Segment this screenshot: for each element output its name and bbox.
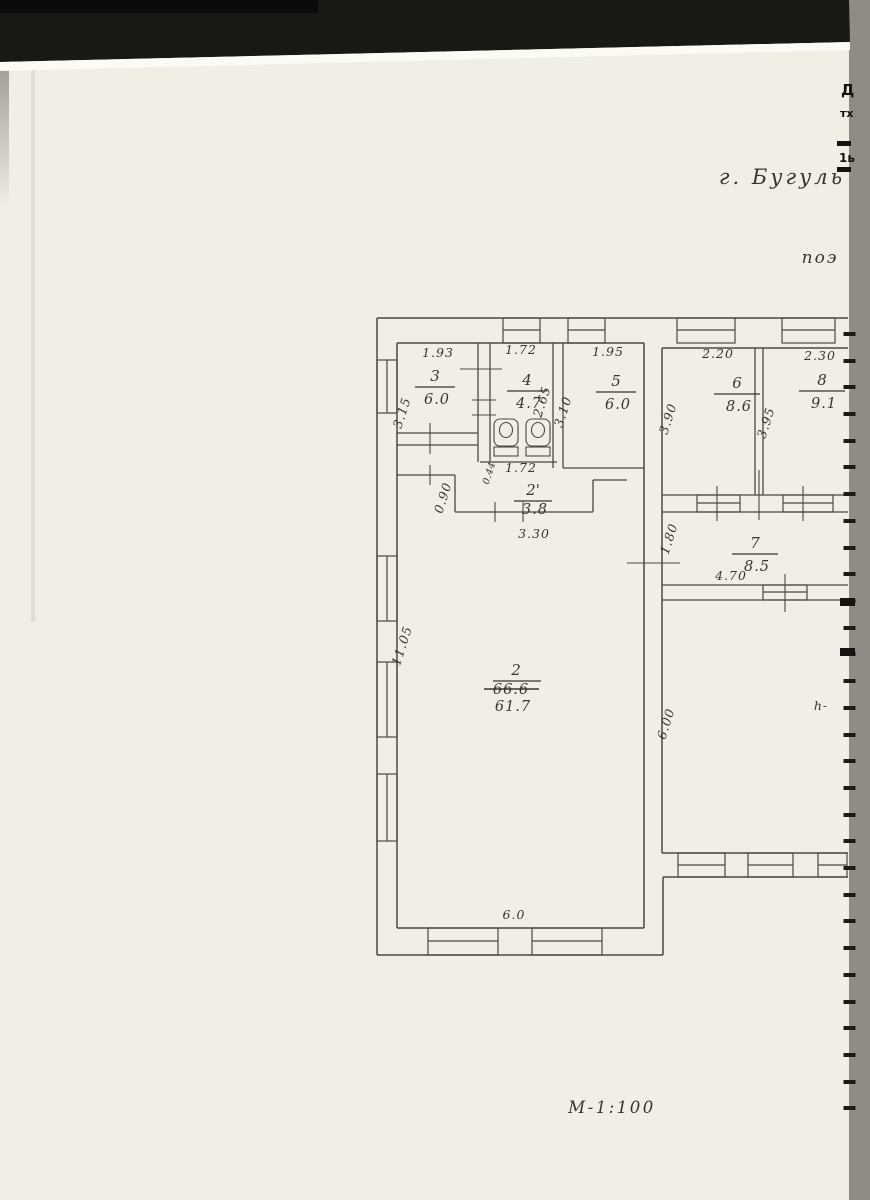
room-4-area: 4.7 [515,396,542,412]
room-2a-number: 2' [525,481,540,499]
room-5-number: 5 [611,372,621,390]
dim-room4-width: 1.72 [505,342,537,357]
edge-fragment-3: 1ь [839,151,855,165]
edge-tick [844,839,856,843]
edge-tick [844,786,856,790]
edge-tick [844,919,856,923]
room-7-number: 7 [750,534,760,552]
edge-bar [837,141,851,146]
room-6-area: 8.6 [726,399,752,415]
edge-mark [840,598,855,606]
edge-bar [837,167,851,172]
room-3-number: 3 [430,367,440,385]
room-2-area: 61.7 [495,699,531,715]
scanner-top-band-dark [0,0,318,13]
edge-tick [844,679,856,683]
edge-tick [844,946,856,950]
dim-room7-width: 4.70 [714,568,747,583]
height-note: h- [814,698,828,713]
edge-tick [844,893,856,897]
room-2a-area: 3.8 [522,502,548,518]
room-7-area: 8.5 [744,559,770,575]
scanned-floor-plan-page: 1.93 1.72 1.95 2.20 2.30 3.15 2.65 3.10 … [0,0,870,1200]
dim-bigroom-width: 6.0 [503,907,526,922]
edge-tick [844,1080,856,1084]
edge-tick [844,1026,856,1030]
edge-tick [844,332,856,336]
edge-tick [844,813,856,817]
floor-plan-canvas: 1.93 1.72 1.95 2.20 2.30 3.15 2.65 3.10 … [0,0,870,1200]
edge-tick [844,626,856,630]
dim-corridor: 3.30 [518,526,550,541]
dim-room3-width: 1.93 [422,345,454,360]
edge-tick [844,546,856,550]
edge-tick [844,1000,856,1004]
dim-room5-width: 1.95 [592,344,624,359]
plan-word-note: поэ [802,248,839,268]
edge-tick [844,359,856,363]
room-5-area: 6.0 [605,397,631,413]
edge-tick [844,465,856,469]
edge-fragment-1: Д [841,81,854,99]
edge-tick [844,733,856,737]
dim-room8-width: 2.30 [803,348,836,363]
edge-tick [844,1106,856,1110]
room-2-area-old: 66.6 [493,682,529,698]
edge-tick [844,866,856,870]
edge-tick [844,492,856,496]
room-8-number: 8 [817,371,827,389]
edge-tick [844,973,856,977]
edge-tick [844,706,856,710]
edge-tick [844,385,856,389]
paper-fold-shadow [31,62,35,622]
edge-tick [844,1053,856,1057]
edge-tick [844,572,856,576]
dim-room6-width: 2.20 [701,346,734,361]
room-8-area: 9.1 [811,396,837,412]
edge-tick [844,759,856,763]
room-3-area: 6.0 [424,392,450,408]
room-4-number: 4 [521,371,532,389]
room-2-number: 2 [510,661,521,679]
edge-tick [844,519,856,523]
scale-note: М-1:100 [567,1098,656,1117]
city-note: г. Бугуль [719,165,845,189]
dim-niche-width: 1.72 [505,460,537,475]
edge-mark [840,648,855,656]
edge-fragment-2: тх [840,107,853,120]
edge-tick [844,412,856,416]
edge-tick [844,439,856,443]
room-6-number: 6 [732,374,742,392]
left-edge-shadow [0,58,9,208]
